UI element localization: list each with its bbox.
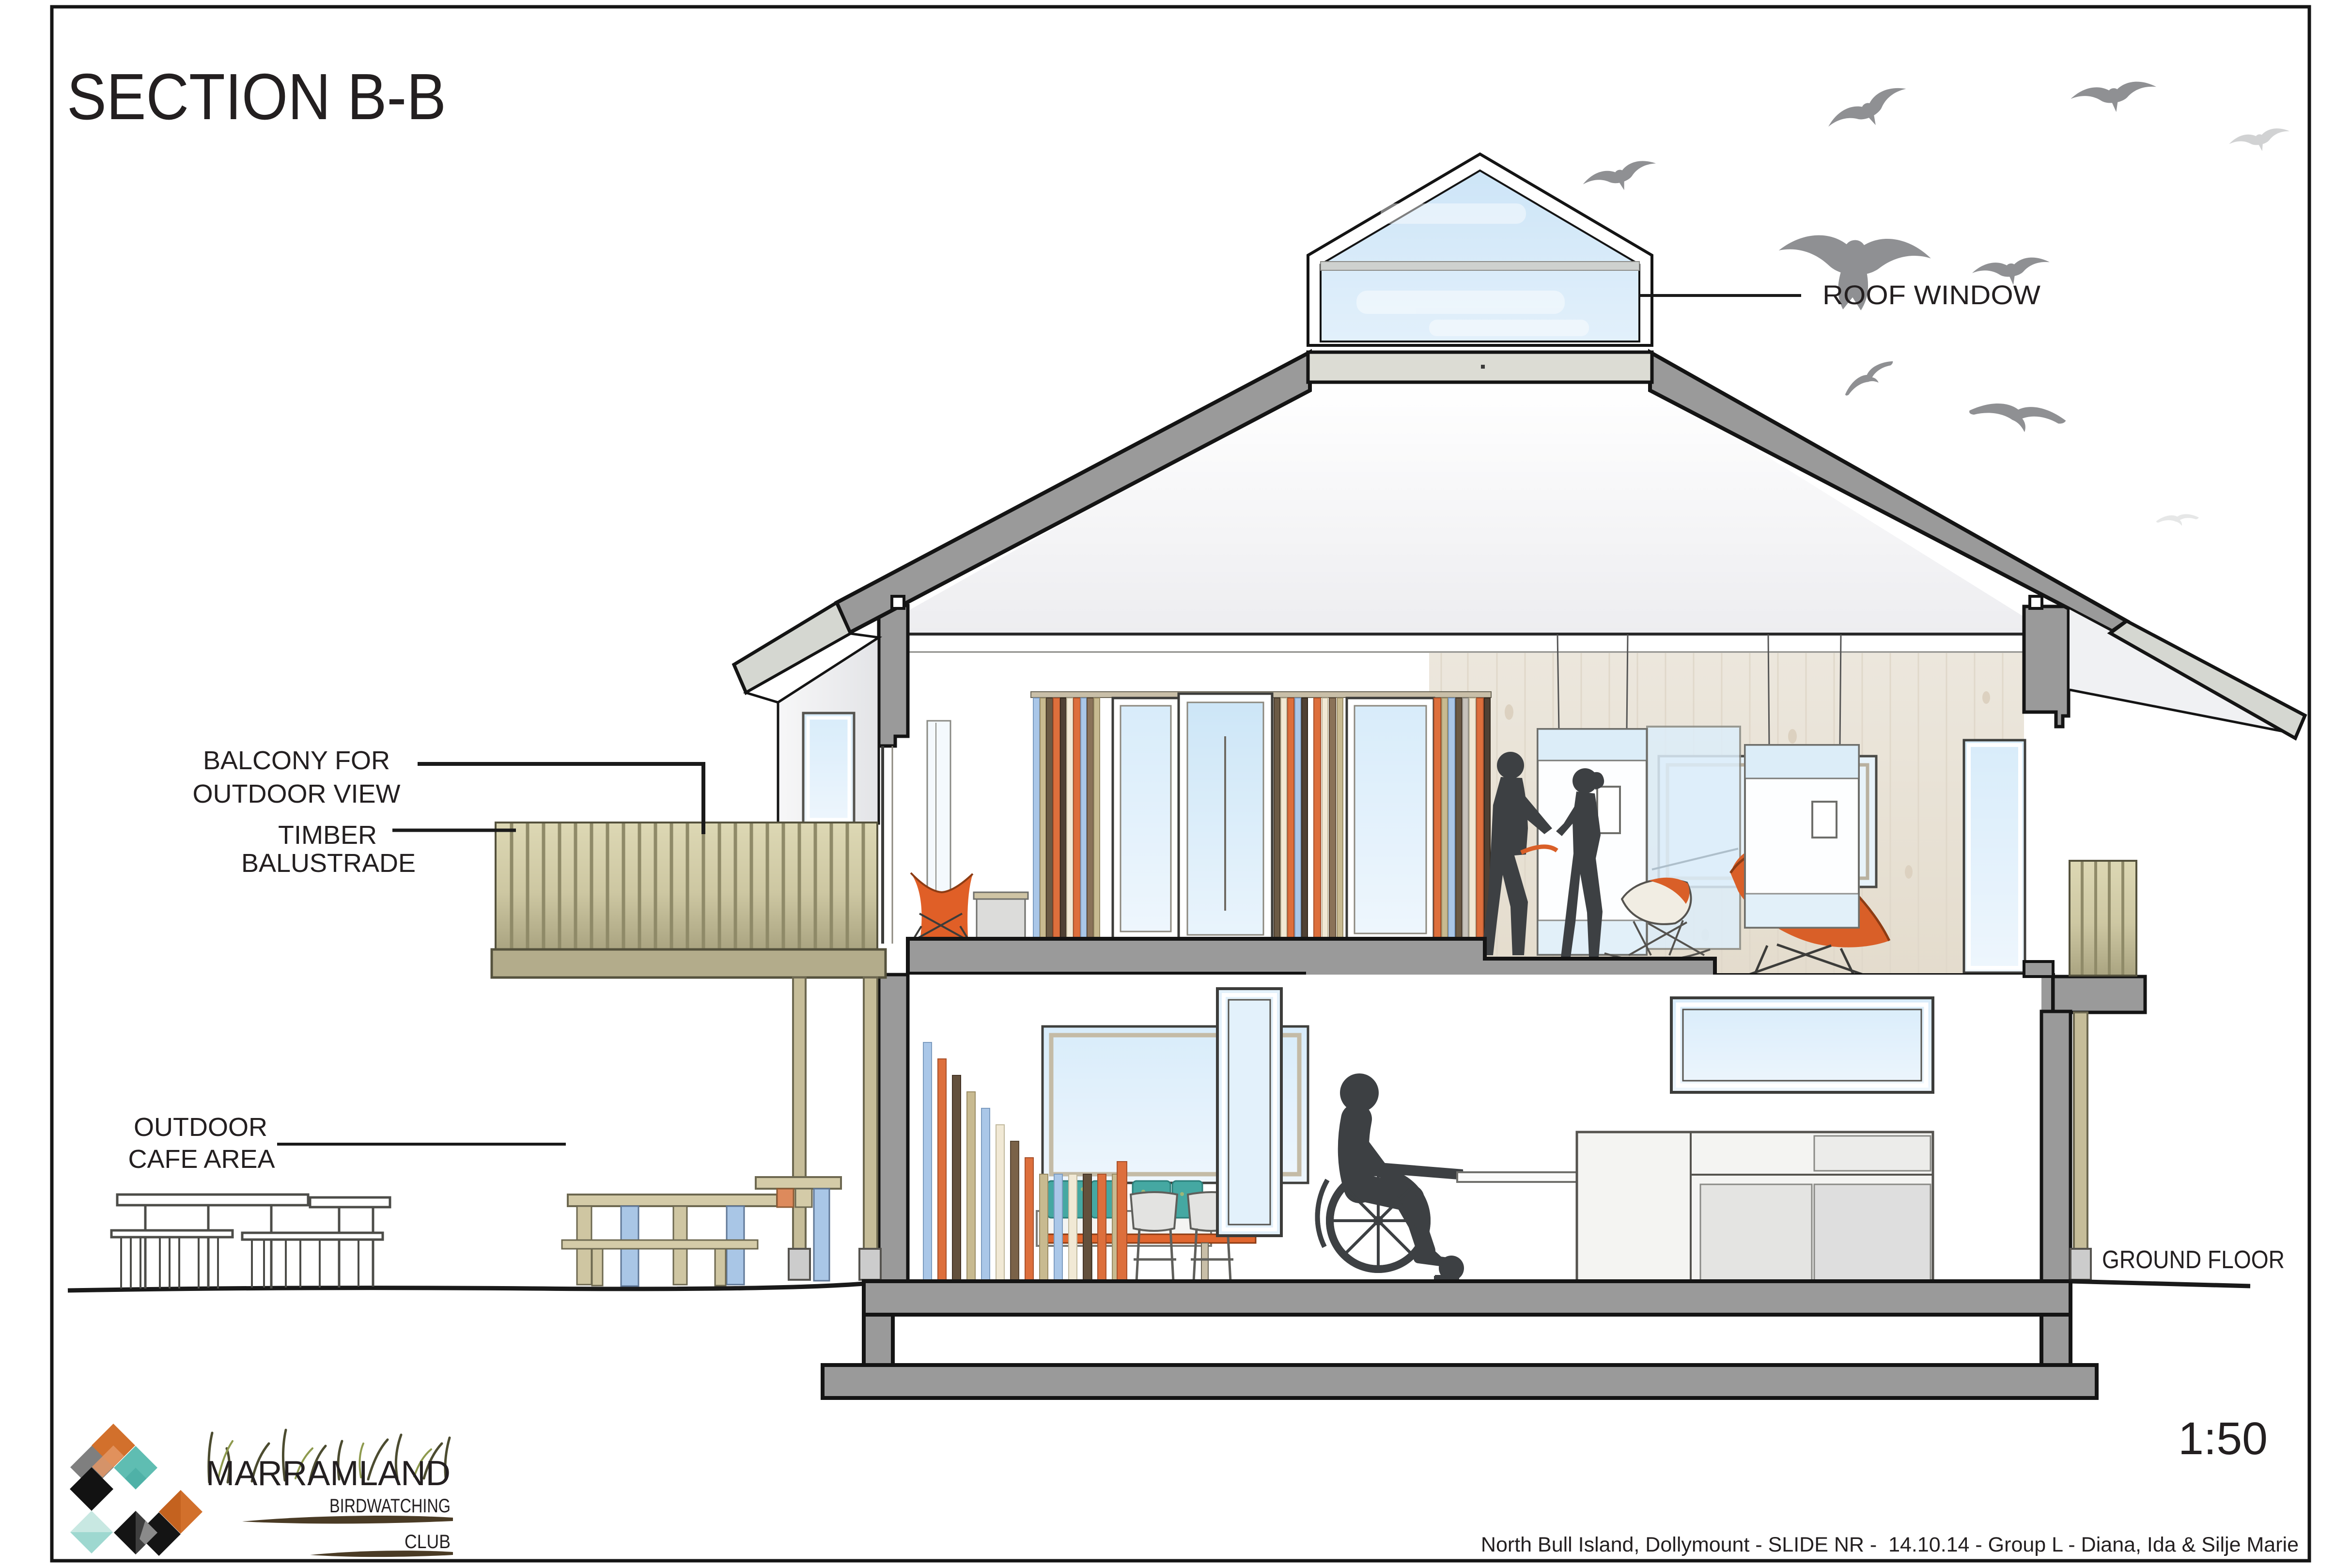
svg-text:BALUSTRADE: BALUSTRADE (241, 849, 416, 878)
svg-text:BIRDWATCHING: BIRDWATCHING (329, 1495, 451, 1517)
svg-text:North Bull Island, Dollymount: North Bull Island, Dollymount - SLIDE NR… (1481, 1533, 2299, 1556)
svg-text:1:50: 1:50 (2178, 1413, 2268, 1464)
svg-text:ROOF WINDOW: ROOF WINDOW (1822, 279, 2040, 310)
svg-text:TIMBER: TIMBER (278, 821, 377, 850)
svg-text:SECTION B-B: SECTION B-B (67, 60, 446, 133)
svg-text:OUTDOOR: OUTDOOR (134, 1113, 267, 1142)
svg-text:OUTDOOR VIEW: OUTDOOR VIEW (193, 779, 401, 808)
svg-text:BALCONY FOR: BALCONY FOR (203, 746, 390, 775)
svg-text:CAFE AREA: CAFE AREA (128, 1145, 275, 1174)
svg-text:MARRAMLAND: MARRAMLAND (206, 1454, 451, 1493)
svg-text:CLUB: CLUB (405, 1531, 451, 1552)
svg-text:GROUND FLOOR: GROUND FLOOR (2102, 1246, 2285, 1274)
